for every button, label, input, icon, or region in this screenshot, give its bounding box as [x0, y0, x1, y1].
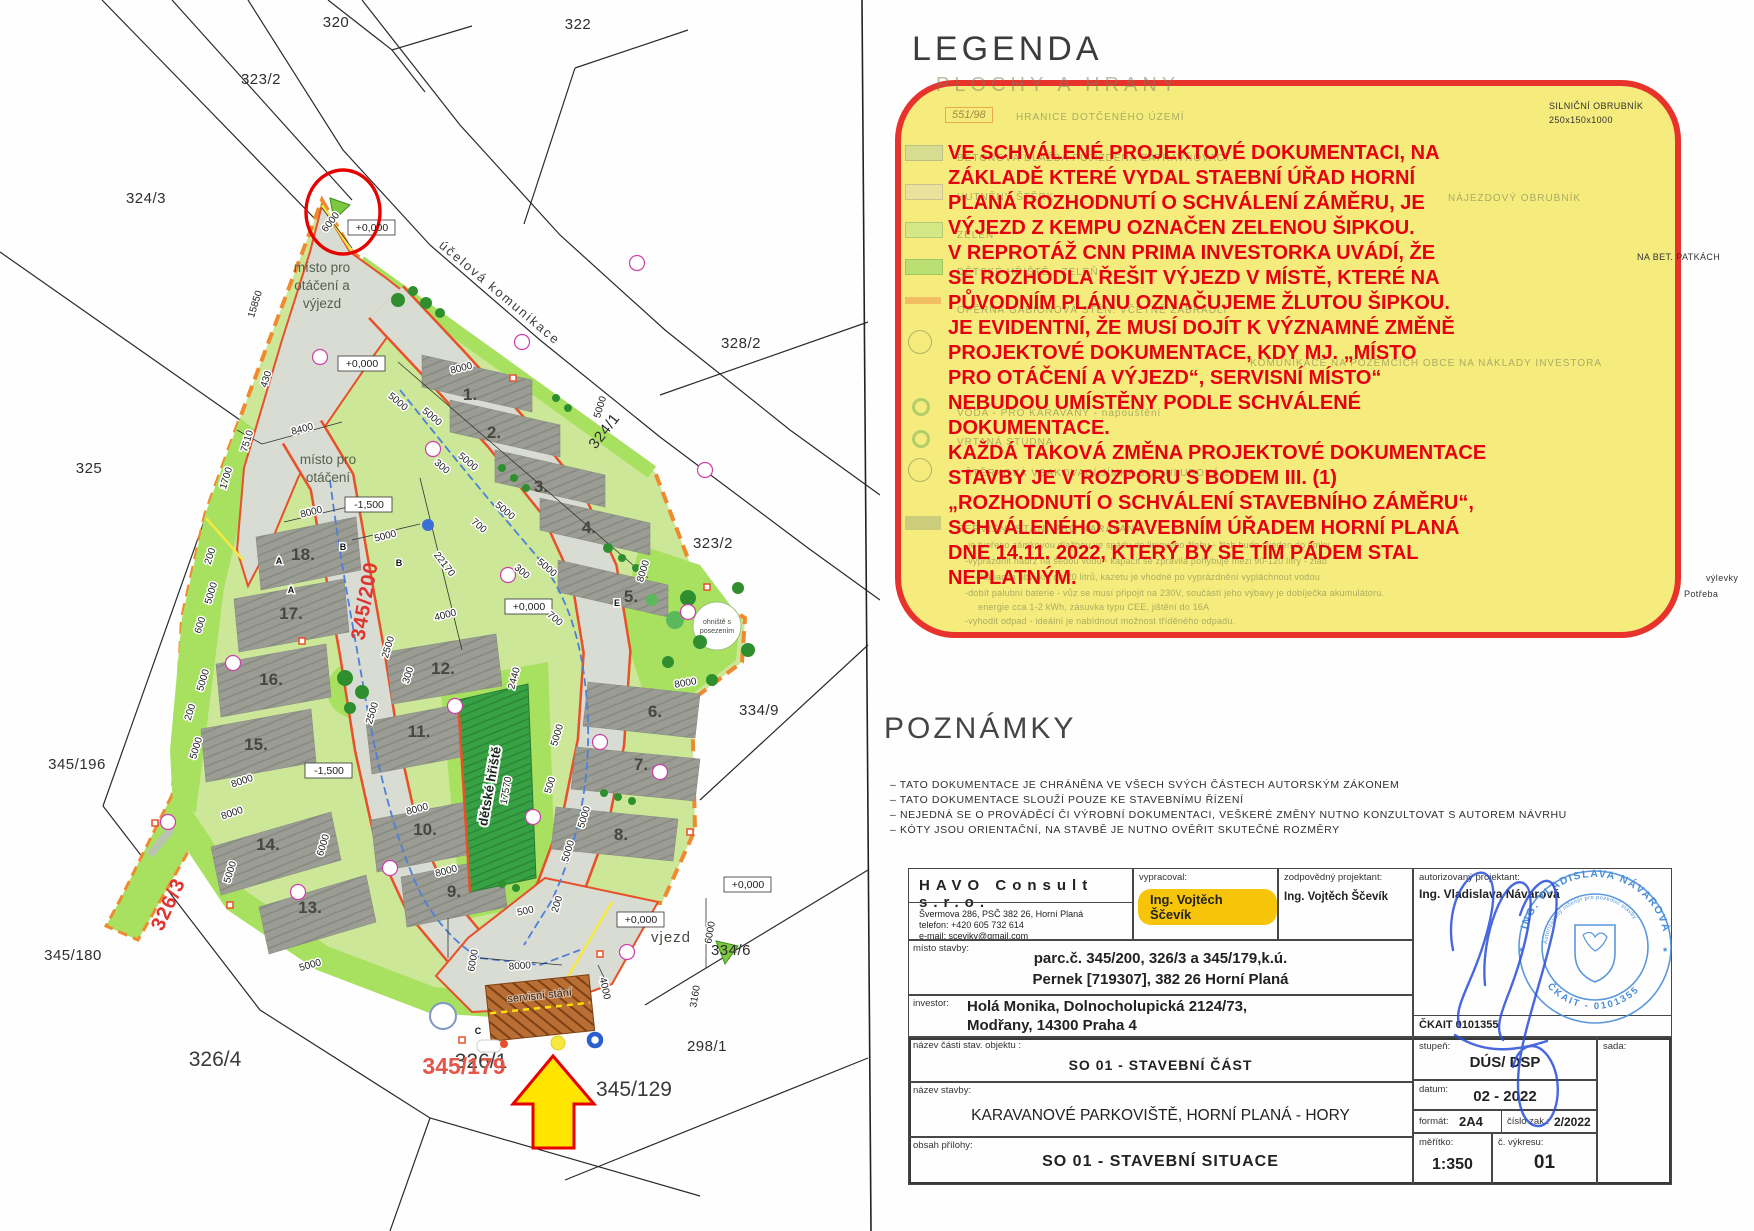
plan-text: výjezd [303, 296, 341, 311]
plan-text: +0,000 [732, 879, 765, 891]
nazev-casti-value: SO 01 - STAVEBNÍ ČÁST [909, 1057, 1412, 1073]
sheet-frame-line [862, 0, 871, 1231]
legend-swatch [908, 330, 932, 354]
legend-swatch [905, 297, 941, 304]
format-label: formát: [1419, 1116, 1449, 1127]
plan-text: 345/179 [422, 1053, 505, 1079]
autorizovany-label: autorizovaný projektant: [1419, 872, 1520, 883]
plan-text: 328/2 [721, 335, 761, 352]
datum-value: 02 - 2022 [1414, 1088, 1596, 1105]
vypracoval-value: Ing. Vojtěch Ščevík [1138, 889, 1277, 925]
zodpovedny-value: Ing. Vojtěch Ščevík [1284, 891, 1388, 903]
plan-text: 15. [244, 735, 268, 754]
plan-text: 323/2 [693, 535, 733, 552]
nazev-casti-cell: název části stav. objektu : SO 01 - STAV… [908, 1037, 1413, 1082]
plan-text: 9. [447, 882, 461, 901]
misto-stavby-line1: parc.č. 345/200, 326/3 a 345/179,k.ú. [909, 950, 1412, 967]
plan-text: 322 [565, 16, 592, 33]
yellow-exit-arrow-icon [513, 1056, 594, 1148]
sada-cell: sada: [1597, 1037, 1672, 1185]
ckait-number: ČKAIT 0101355 [1419, 1019, 1499, 1031]
annotation-text: VE SCHVÁLENÉ PROJEKTOVÉ DOKUMENTACI, NA … [948, 141, 1664, 591]
plan-text: 326/4 [189, 1048, 242, 1071]
legend-fragment: Potřeba [1684, 589, 1718, 599]
plan-text: 18. [291, 545, 315, 564]
plan-text: 6. [648, 702, 662, 721]
plan-text: 16. [259, 670, 283, 689]
plan-text: A [288, 585, 295, 595]
title-block: HAVO Consult s.r.o. Švermova 286, PSČ 38… [908, 868, 1672, 1185]
yellow-point-icon [551, 1036, 565, 1050]
plan-text: posezením [700, 628, 734, 635]
playground [458, 684, 536, 892]
plan-text: 324/3 [126, 190, 166, 207]
legend-swatch [905, 259, 943, 275]
plan-text: 14. [256, 835, 280, 854]
investor-label: investor: [913, 998, 949, 1009]
plan-text: místo pro [294, 260, 350, 275]
plan-text: 2. [487, 423, 501, 442]
vypracoval-cell: vypracoval: Ing. Vojtěch Ščevík [1133, 868, 1278, 940]
legend-swatch [908, 458, 932, 482]
plan-text: 334/6 [711, 942, 751, 959]
autorizovany-cell: autorizovaný projektant: Ing. Vladislava… [1413, 868, 1672, 1037]
plan-text: 5. [624, 587, 638, 606]
datum-cell: datum: 02 - 2022 [1413, 1080, 1597, 1110]
plan-text: 8000 [508, 960, 531, 973]
plan-text: 10. [413, 820, 437, 839]
plan-text: 334/9 [739, 702, 779, 719]
plan-text: místo pro [300, 452, 356, 467]
plan-text: 4. [582, 518, 596, 537]
plan-text: 345/196 [48, 756, 106, 773]
meritko-label: měřítko: [1419, 1137, 1453, 1148]
plan-text: 325 [76, 460, 103, 477]
stupen-cell: stupeň: DÚS/ DSP [1413, 1037, 1597, 1080]
plan-text: B [396, 558, 403, 568]
plan-text: 15850 [246, 289, 265, 319]
cislo-vykresu-label: č. výkresu: [1498, 1137, 1543, 1148]
plan-text: +0,000 [513, 601, 546, 613]
stupen-label: stupeň: [1419, 1041, 1450, 1052]
service-stand [485, 975, 594, 1042]
legend-swatch [905, 145, 943, 161]
nazev-stavby-label: název stavby: [913, 1085, 971, 1096]
company-address: Švermova 286, PSČ 382 26, Horní Planá te… [919, 909, 1083, 942]
legend-swatch [912, 398, 930, 416]
plan-text: 345/180 [44, 947, 102, 964]
legend-fragment: energie cca 1-2 kWh, zásuvka typu CEE, j… [978, 602, 1209, 612]
plan-text: -1,500 [314, 765, 344, 777]
legend-fragment: 250x150x1000 [1549, 115, 1613, 125]
soakaway-circle [430, 1003, 456, 1029]
legend-fragment: PLOCHY A HRANY [936, 74, 1180, 97]
plan-text: 17. [279, 604, 303, 623]
notes-list: – TATO DOKUMENTACE JE CHRÁNĚNA VE VŠECH … [890, 778, 1567, 838]
plan-text: A [276, 556, 283, 566]
plan-text: 3. [534, 477, 548, 496]
plan-text: +0,000 [346, 358, 379, 370]
well-icon [589, 1034, 601, 1046]
plan-text: 13. [298, 898, 322, 917]
legend-fragment: výlevky [1706, 573, 1738, 583]
investor-cell: investor: Holá Monika, Dolnocholupická 2… [908, 995, 1413, 1037]
plan-text: otáčení [306, 470, 351, 485]
legend-swatch [905, 184, 943, 200]
legend-swatch [905, 222, 943, 238]
misto-stavby-line2: Pernek [719307], 382 26 Horní Planá [909, 971, 1412, 988]
cislo-zak-label: číslo zak.: [1507, 1116, 1549, 1127]
notes-title: POZNÁMKY [884, 712, 1076, 746]
obsah-prilohy-value: SO 01 - STAVEBNÍ SITUACE [909, 1153, 1412, 1171]
zodpovedny-label: zodpovědný projektant: [1284, 872, 1382, 883]
plan-text: E [614, 598, 620, 608]
plan-text: -1,500 [354, 499, 384, 511]
cislo-vykresu-value: 01 [1493, 1152, 1596, 1174]
plan-text: B [340, 542, 347, 552]
vypracoval-label: vypracoval: [1139, 872, 1187, 883]
nazev-casti-label: název části stav. objektu : [913, 1040, 1021, 1051]
plan-text: ohniště s [703, 619, 732, 626]
legend-title: LEGENDA [912, 30, 1103, 69]
obsah-prilohy-cell: obsah přílohy: SO 01 - STAVEBNÍ SITUACE [908, 1137, 1413, 1185]
site-plan: 6000158504308400751017008000500080005000… [0, 0, 880, 1231]
plan-text: 345/129 [596, 1078, 672, 1101]
legend-swatch [905, 516, 941, 530]
nazev-stavby-value: KARAVANOVÉ PARKOVIŠTĚ, HORNÍ PLANÁ - HOR… [909, 1107, 1412, 1125]
plan-text: 323/2 [241, 71, 281, 88]
nazev-stavby-cell: název stavby: KARAVANOVÉ PARKOVIŠTĚ, HOR… [908, 1082, 1413, 1137]
plan-text: 3160 [688, 984, 703, 1008]
company-name: HAVO Consult s.r.o. [919, 877, 1132, 911]
cislo-vykresu-cell: č. výkresu: 01 [1492, 1133, 1597, 1185]
sada-label: sada: [1603, 1041, 1626, 1052]
hydrant-icon [422, 519, 434, 531]
plan-text: 298/1 [687, 1038, 727, 1055]
drawing-sheet: 6000158504308400751017008000500080005000… [0, 0, 1754, 1231]
plan-text: 12. [431, 659, 455, 678]
legend-fragment: 551/98 [945, 107, 993, 123]
zodpovedny-cell: zodpovědný projektant: Ing. Vojtěch Ščev… [1278, 868, 1413, 940]
plan-text: 8. [614, 825, 628, 844]
plan-text: otáčení a [294, 278, 350, 293]
plan-text: C [475, 1026, 482, 1036]
legend-fragment: HRANICE DOTČENÉHO ÚZEMÍ [1016, 112, 1185, 123]
autorizovany-value: Ing. Vladislava Návarová [1419, 887, 1560, 901]
cislo-zak-value: 2/2022 [1554, 1115, 1591, 1129]
investor-line1: Holá Monika, Dolnocholupická 2124/73, [967, 998, 1247, 1015]
plan-text: 7. [634, 755, 648, 774]
company-cell: HAVO Consult s.r.o. Švermova 286, PSČ 38… [908, 868, 1133, 940]
investor-line2: Modřany, 14300 Praha 4 [967, 1017, 1137, 1034]
plan-text: 320 [323, 14, 350, 31]
plan-text: +0,000 [356, 222, 389, 234]
format-cell: formát: 2A4 číslo zak.: 2/2022 [1413, 1110, 1597, 1133]
legend-fragment: -vyhodit odpad - ideální je nabídnout mo… [965, 616, 1235, 626]
format-value: 2A4 [1459, 1114, 1483, 1129]
plan-text: vjezd [651, 929, 691, 946]
plan-text: +0,000 [625, 914, 658, 926]
stupen-value: DÚS/ DSP [1414, 1054, 1596, 1071]
plan-text: 11. [408, 722, 431, 741]
obsah-prilohy-label: obsah přílohy: [913, 1140, 973, 1151]
legend-fragment: SILNIČNÍ OBRUBNÍK [1549, 101, 1643, 111]
misto-stavby-cell: místo stavby: parc.č. 345/200, 326/3 a 3… [908, 940, 1413, 995]
plan-text: 1. [463, 385, 477, 404]
meritko-cell: měřítko: 1:350 [1413, 1133, 1492, 1185]
legend-swatch [912, 430, 930, 448]
meritko-value: 1:350 [1414, 1156, 1491, 1174]
